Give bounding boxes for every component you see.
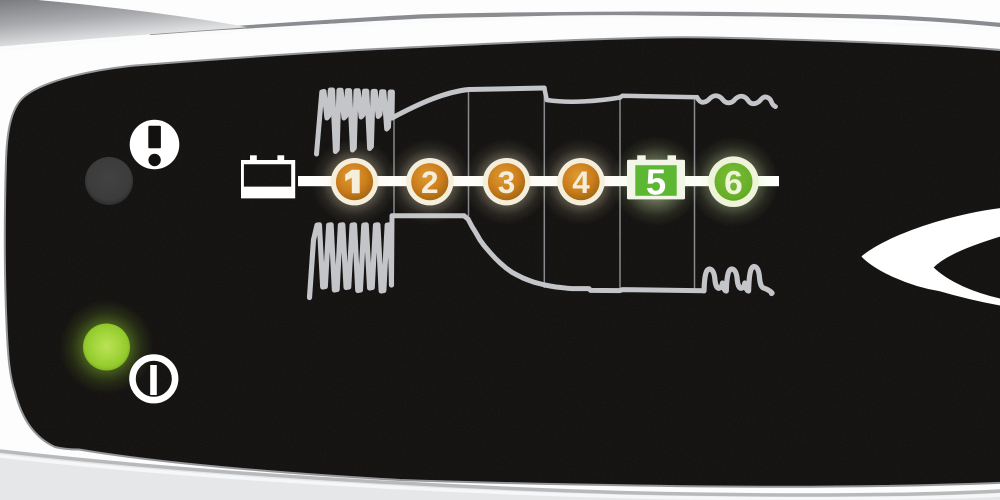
svg-text:2: 2: [421, 164, 439, 200]
svg-text:3: 3: [498, 164, 516, 200]
svg-text:5: 5: [646, 161, 666, 202]
svg-text:6: 6: [724, 165, 743, 202]
svg-text:4: 4: [572, 164, 590, 200]
